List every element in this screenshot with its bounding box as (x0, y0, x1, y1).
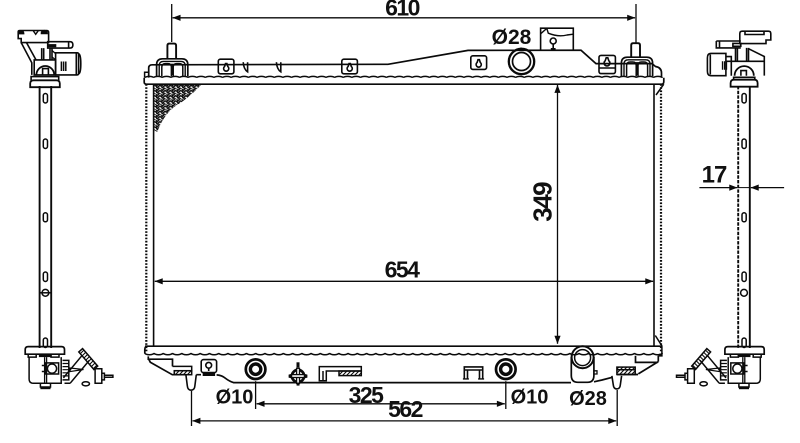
svg-text:325: 325 (349, 382, 385, 408)
svg-text:Ø10: Ø10 (511, 386, 549, 408)
svg-text:17: 17 (702, 161, 727, 188)
svg-text:Ø10: Ø10 (216, 386, 254, 408)
svg-text:Ø28: Ø28 (569, 388, 607, 410)
svg-text:Ø28: Ø28 (492, 26, 532, 49)
svg-text:610: 610 (385, 0, 420, 21)
svg-text:654: 654 (385, 257, 421, 283)
svg-text:562: 562 (388, 396, 423, 422)
svg-text:349: 349 (528, 182, 558, 222)
